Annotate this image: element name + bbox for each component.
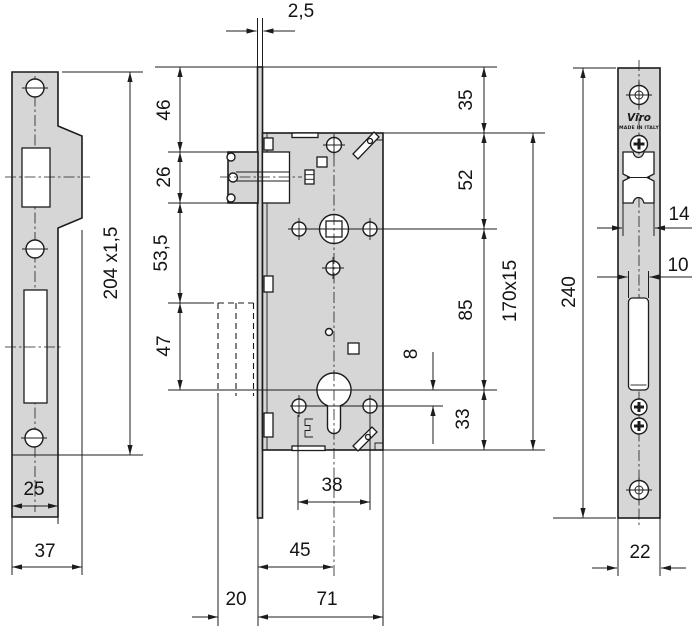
dim-strike-width-label: 37 xyxy=(34,541,55,562)
fixing-lug-bottom xyxy=(264,413,273,437)
case-top-notch xyxy=(292,133,318,138)
dim-latch-to-handle-label: 53,5 xyxy=(151,235,172,272)
dim-follower-to-cylinder-label: 85 xyxy=(456,299,477,320)
brand-logo: Viro xyxy=(627,112,651,124)
dim-hole-offset-label: 8 xyxy=(401,349,422,360)
dim-latch-cutout-width-label: 14 xyxy=(668,204,690,225)
dim-latch-height-label: 26 xyxy=(154,166,175,187)
latch-notch-bottom xyxy=(227,194,235,202)
small-pin-hole xyxy=(326,329,333,336)
dim-handle-zone-label: 47 xyxy=(154,335,175,356)
fixing-lug-top xyxy=(264,138,273,150)
dim-screw-span-label: 38 xyxy=(321,475,342,496)
strike-latch-opening xyxy=(22,148,50,207)
dim-top-to-latch-label: 46 xyxy=(154,99,175,120)
lock-technical-drawing: 204 x1,5 25 37 xyxy=(0,0,700,636)
hidden-cylinder-outline xyxy=(218,303,254,396)
dim-case-size-label: 170x15 xyxy=(500,260,521,322)
dim-strike-inner-width-label: 25 xyxy=(23,479,44,500)
brand-origin: MADE IN ITALY xyxy=(619,125,659,131)
dim-bolt-cutout-width-label: 10 xyxy=(667,255,688,276)
internal-square-hole-top xyxy=(317,157,327,167)
dim-case-depth-label: 71 xyxy=(316,589,337,610)
strike-bolt-opening xyxy=(24,290,47,403)
latch-notch-top xyxy=(227,153,235,161)
fixing-lug-middle xyxy=(264,276,273,292)
latch-housing xyxy=(263,152,290,203)
dim-backset-label: 45 xyxy=(289,540,310,561)
dim-top-margin-label: 35 xyxy=(456,89,477,110)
strike-plate xyxy=(5,72,90,517)
internal-square-hole-bottom xyxy=(348,343,359,354)
dim-faceplate-length-label: 240 xyxy=(559,276,580,308)
front-plate: Viro MADE IN ITALY xyxy=(618,60,660,528)
dim-faceplate-thickness-label: 2,5 xyxy=(288,1,314,22)
front-screw-bolt-upper xyxy=(631,399,647,415)
case-bottom-step xyxy=(292,446,325,451)
dim-to-follower-label: 52 xyxy=(456,169,477,190)
bolt-cutout xyxy=(629,298,649,390)
dim-cylinder-to-bottom-label: 33 xyxy=(453,408,474,429)
dim-protrusion-label: 20 xyxy=(225,589,246,610)
dim-faceplate-width-label: 22 xyxy=(629,542,650,563)
dim-strike-plate-label: 204 x1,5 xyxy=(101,227,122,300)
front-screw-bolt-lower xyxy=(631,418,647,434)
drawing-canvas: 204 x1,5 25 37 xyxy=(0,0,700,636)
spring-stack xyxy=(305,170,314,184)
front-screw-latch xyxy=(631,136,648,153)
